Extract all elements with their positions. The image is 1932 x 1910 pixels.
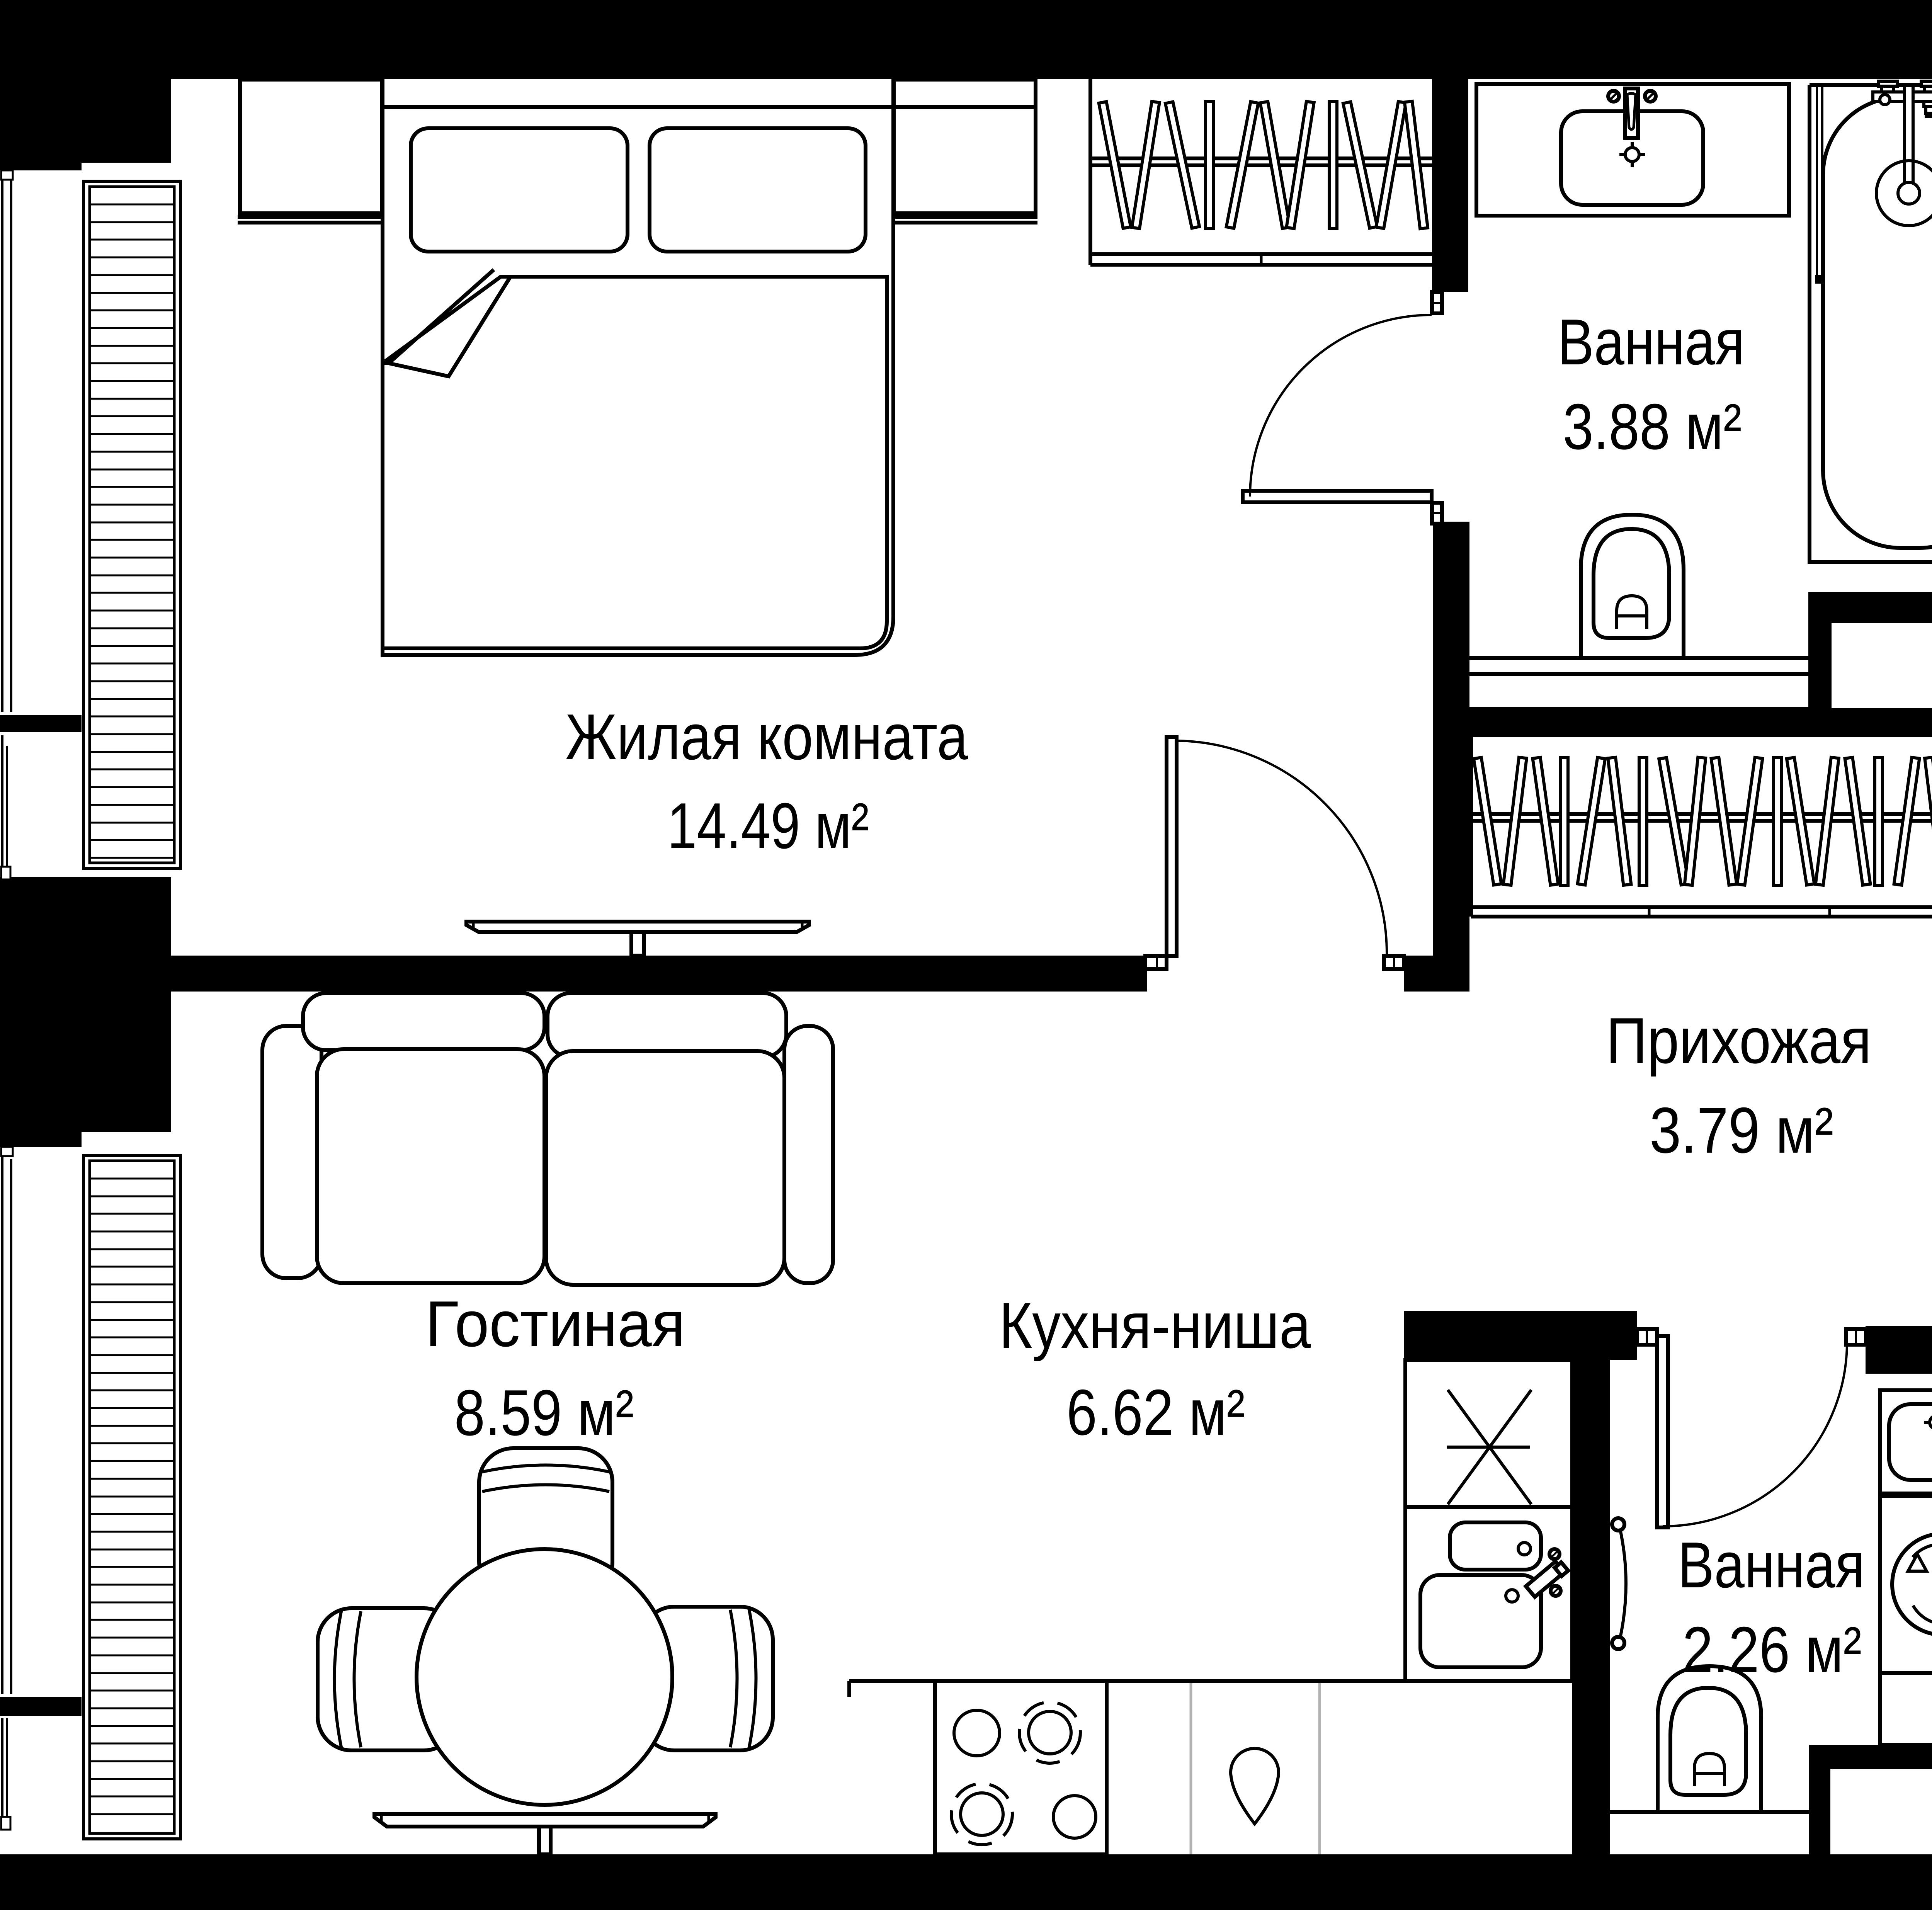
svg-text:8.59 м²: 8.59 м² [454, 1376, 634, 1449]
svg-text:Прихожая: Прихожая [1606, 1004, 1872, 1077]
svg-text:14.49 м²: 14.49 м² [667, 789, 869, 862]
svg-text:6.62 м²: 6.62 м² [1066, 1376, 1245, 1449]
svg-text:3.88 м²: 3.88 м² [1563, 390, 1742, 463]
svg-text:2.26 м²: 2.26 м² [1682, 1613, 1862, 1686]
svg-text:Гостиная: Гостиная [425, 1288, 685, 1360]
svg-text:Ванная: Ванная [1678, 1529, 1865, 1601]
svg-text:Жилая комната: Жилая комната [565, 701, 968, 773]
svg-text:Ванная: Ванная [1558, 306, 1745, 378]
svg-text:Кухня-ниша: Кухня-ниша [999, 1289, 1311, 1362]
svg-text:3.79 м²: 3.79 м² [1650, 1094, 1833, 1167]
